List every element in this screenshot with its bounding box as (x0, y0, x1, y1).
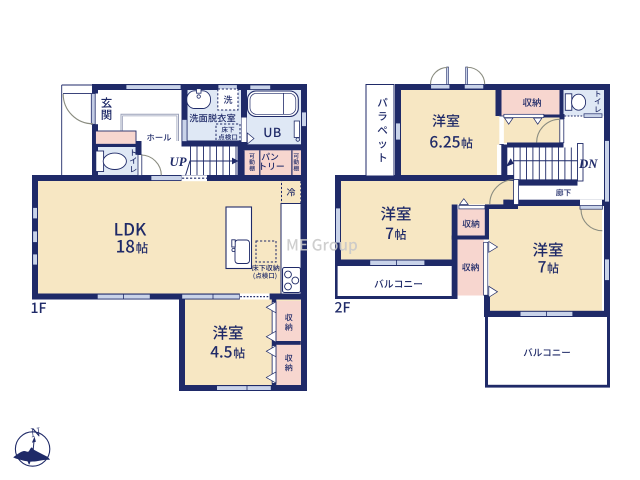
svg-text:洋室: 洋室 (380, 202, 411, 224)
svg-text:7: 7 (385, 222, 394, 244)
svg-text:洗: 洗 (223, 93, 232, 106)
svg-text:収納: 収納 (522, 95, 541, 109)
svg-text:UB: UB (263, 122, 282, 141)
svg-text:1F: 1F (31, 298, 47, 318)
svg-text:バルコニー: バルコニー (523, 345, 571, 359)
svg-text:(点検口): (点検口) (253, 270, 277, 280)
svg-text:ト: ト (377, 150, 388, 165)
svg-text:帖: 帖 (461, 134, 473, 151)
svg-text:7: 7 (538, 256, 547, 278)
svg-text:レ: レ (594, 105, 601, 115)
svg-text:バルコニー: バルコニー (374, 276, 423, 290)
svg-text:点検口: 点検口 (218, 132, 238, 142)
svg-text:冷: 冷 (286, 186, 295, 199)
svg-text:18: 18 (116, 233, 135, 258)
svg-text:UP: UP (170, 155, 187, 169)
svg-text:帖: 帖 (395, 226, 407, 243)
svg-text:収納: 収納 (462, 217, 480, 230)
svg-text:棚: 棚 (249, 164, 255, 173)
svg-text:納: 納 (285, 363, 293, 374)
svg-text:関: 関 (101, 107, 113, 123)
svg-text:ホール: ホール (147, 131, 172, 143)
svg-text:収納: 収納 (462, 261, 480, 274)
svg-text:帖: 帖 (136, 238, 149, 257)
svg-text:DN: DN (578, 157, 598, 171)
svg-text:4.5: 4.5 (210, 341, 232, 363)
svg-text:洋室: 洋室 (432, 111, 460, 131)
svg-text:納: 納 (285, 322, 293, 333)
svg-text:ME Group: ME Group (286, 234, 358, 256)
svg-text:棚: 棚 (293, 164, 299, 173)
svg-text:帖: 帖 (233, 345, 245, 362)
svg-text:レ: レ (129, 164, 137, 175)
svg-text:2F: 2F (335, 298, 351, 318)
svg-text:トリー: トリー (258, 160, 284, 173)
svg-text:廊下: 廊下 (556, 187, 572, 198)
svg-text:洗面脱衣室: 洗面脱衣室 (189, 110, 236, 124)
svg-text:帖: 帖 (547, 260, 559, 277)
svg-text:6.25: 6.25 (429, 130, 460, 152)
